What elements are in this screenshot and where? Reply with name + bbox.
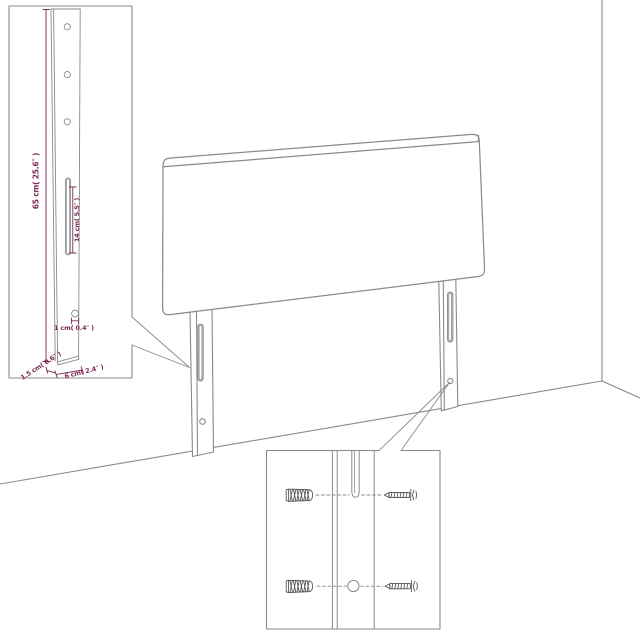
strip-round-hole-icon	[348, 580, 359, 591]
floor-line-right	[602, 381, 640, 398]
detail-hole-icon-bottom	[64, 119, 70, 125]
strip-slot-channel-icon	[352, 451, 359, 498]
headboard-assembly-diagram: 65 cm( 25.6″ ) 14 cm( 5.5″ ) 1 cm( 0.4″ …	[0, 0, 640, 640]
right-leg-body	[439, 279, 458, 411]
floor-line-left	[0, 381, 602, 484]
headboard-left-leg	[190, 308, 214, 457]
hole-diameter-label: 1 cm( 0.4″ )	[54, 325, 94, 332]
detail-hole-icon-top	[64, 24, 70, 30]
right-leg-hole-icon	[448, 378, 453, 383]
dim-line-leg-depth	[47, 370, 55, 372]
dim-leg-depth	[46, 367, 55, 373]
screws-detail-leg-strip	[332, 451, 374, 630]
detail-slot-icon	[65, 178, 70, 255]
screws-detail-callout-lines	[379, 383, 450, 451]
headboard-front-face	[163, 134, 485, 314]
wall-plug-icon-bottom	[286, 580, 312, 592]
wall-plug-icon-top	[286, 489, 312, 501]
dim-hole-diameter	[71, 318, 78, 324]
dimension-layer	[43, 10, 84, 378]
line-art-layer	[0, 0, 640, 629]
screw-icon-top	[384, 489, 416, 500]
slot-length-label: 14 cm( 5.5″ )	[74, 198, 81, 242]
left-leg-hole-icon	[200, 419, 206, 425]
leg-detail-callout-lines	[132, 317, 190, 368]
diagram-line-art	[0, 0, 640, 640]
detail-hole-icon-middle	[64, 72, 70, 78]
hardware-layer	[286, 489, 417, 593]
headboard-right-leg	[439, 279, 458, 411]
leg-height-label: 65 cm( 25.6″ )	[32, 153, 40, 209]
screws-detail-box-frame	[267, 451, 441, 630]
headboard-panel	[163, 134, 485, 314]
screw-icon-bottom	[385, 581, 417, 592]
alignment-dashed-lines	[316, 495, 383, 586]
dim-leg-height	[43, 10, 50, 362]
detail-slot-inner	[67, 179, 70, 254]
detail-small-hole-icon	[72, 310, 79, 317]
dim-bracket-hole-diameter	[71, 318, 78, 324]
